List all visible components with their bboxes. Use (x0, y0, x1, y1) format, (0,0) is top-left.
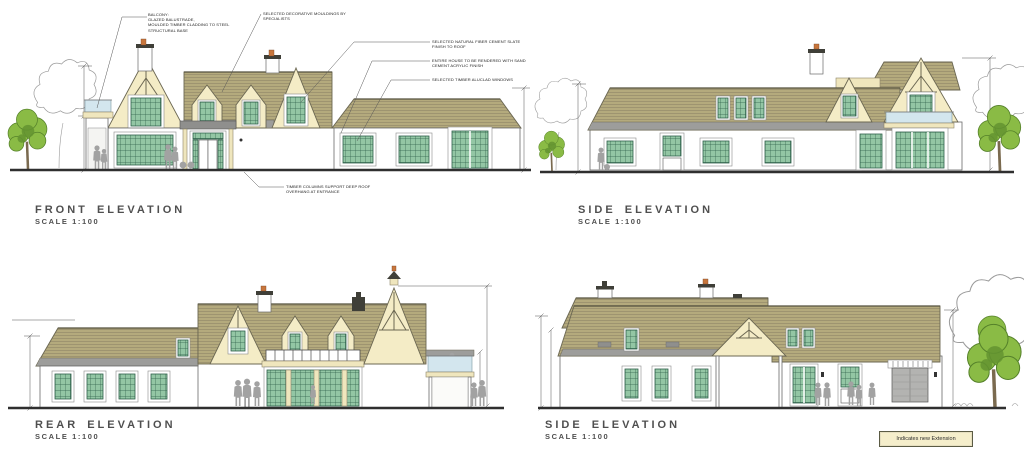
windows-annotation: SELECTED TIMBER ALUCLAD WINDOWS (432, 77, 513, 82)
balcony (426, 350, 474, 408)
new-extension-legend: Indicates new Extension (879, 431, 973, 447)
front-elevation-scale: SCALE 1:100 (35, 217, 99, 226)
house-side-upper (588, 44, 962, 170)
balcony-annotation: BALCONY: GLAZED BALUSTRADE, MOULDED TIMB… (148, 12, 229, 33)
chimneys (136, 39, 281, 73)
conservatory (262, 350, 364, 408)
side-elevation-lower-drawing (535, 275, 1024, 411)
tree-right (949, 275, 1024, 407)
side-elevation-upper-title: SIDE ELEVATION (578, 204, 713, 216)
mouldings-annotation: SELECTED DECORATIVE MOULDINGS BY SPECIAL… (263, 11, 346, 21)
tree (535, 78, 587, 171)
side-elevation-upper-scale: SCALE 1:100 (578, 217, 642, 226)
front-elevation-title: FRONT ELEVATION (35, 204, 185, 216)
roof-finish-annotation: SELECTED NATURAL FIBER CEMENT SLATE FINI… (432, 39, 520, 49)
garage-door (888, 360, 932, 402)
side-elevation-upper-drawing (535, 44, 1024, 175)
entrance-annotation: TIMBER COLUMNS SUPPORT DEEP ROOF OVERHAN… (286, 184, 370, 194)
rear-elevation-scale: SCALE 1:100 (35, 432, 99, 441)
new-extension-legend-label: Indicates new Extension (896, 436, 955, 442)
rear-elevation-title: REAR ELEVATION (35, 419, 176, 431)
tree-right (973, 64, 1024, 171)
rear-elevation-drawing (8, 266, 504, 411)
house-side-lower (558, 279, 942, 408)
house-rear (36, 266, 474, 408)
drawing-sheet: FRONT ELEVATION SCALE 1:100 SIDE ELEVATI… (0, 0, 1024, 453)
render-finish-annotation: ENTIRE HOUSE TO BE RENDERED WITH SAND CE… (432, 58, 526, 68)
side-elevation-lower-scale: SCALE 1:100 (545, 432, 609, 441)
side-elevation-lower-title: SIDE ELEVATION (545, 419, 680, 431)
